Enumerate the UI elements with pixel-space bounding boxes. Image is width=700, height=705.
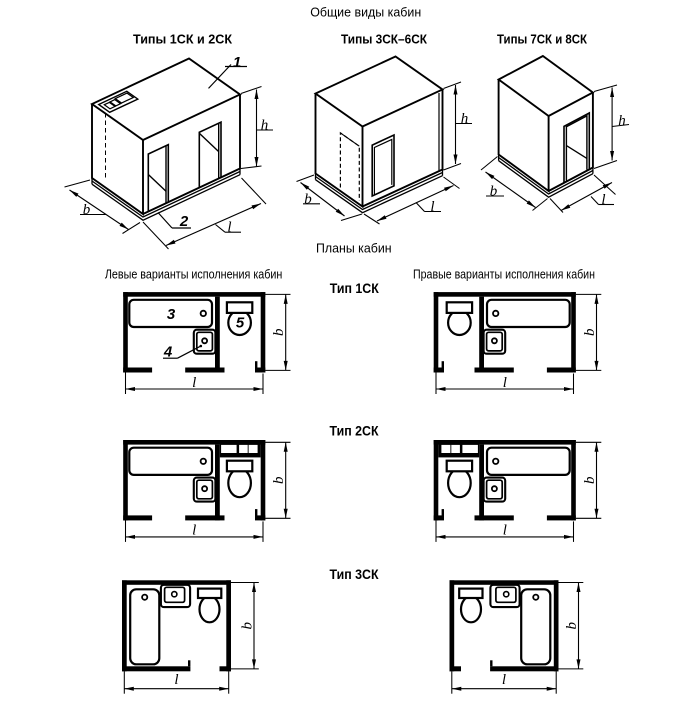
svg-text:Правые варианты исполнения каб: Правые варианты исполнения кабин bbox=[413, 268, 595, 282]
svg-text:l: l bbox=[192, 375, 196, 391]
svg-text:l: l bbox=[503, 523, 507, 539]
svg-text:l: l bbox=[503, 375, 507, 391]
svg-text:h: h bbox=[618, 113, 626, 129]
svg-text:l: l bbox=[192, 523, 196, 539]
svg-text:2: 2 bbox=[179, 213, 189, 230]
svg-text:Общие виды кабин: Общие виды кабин bbox=[310, 5, 421, 20]
svg-text:4: 4 bbox=[163, 344, 173, 361]
svg-text:l: l bbox=[502, 672, 506, 688]
svg-text:Тип 3СК: Тип 3СК bbox=[330, 567, 380, 582]
svg-text:Тип 1СК: Тип 1СК bbox=[330, 281, 380, 296]
svg-text:Левые варианты исполнения каби: Левые варианты исполнения кабин bbox=[105, 268, 283, 282]
svg-text:3: 3 bbox=[167, 306, 176, 323]
svg-text:b: b bbox=[564, 622, 580, 630]
svg-text:l: l bbox=[227, 220, 231, 236]
svg-text:b: b bbox=[304, 191, 312, 207]
svg-text:b: b bbox=[490, 184, 498, 200]
svg-text:h: h bbox=[261, 118, 269, 134]
svg-text:b: b bbox=[582, 476, 598, 484]
svg-text:Тип 2СК: Тип 2СК bbox=[330, 424, 380, 439]
svg-text:b: b bbox=[271, 476, 287, 484]
svg-text:l: l bbox=[601, 192, 605, 208]
svg-text:b: b bbox=[271, 328, 287, 336]
svg-text:Типы 3СК–6СК: Типы 3СК–6СК bbox=[341, 32, 427, 47]
svg-text:Планы кабин: Планы кабин bbox=[316, 241, 392, 256]
svg-text:b: b bbox=[582, 328, 598, 336]
svg-text:1: 1 bbox=[233, 54, 241, 71]
svg-text:Типы 7СК и 8СК: Типы 7СК и 8СК bbox=[497, 32, 587, 47]
svg-text:Типы 1СК и 2СК: Типы 1СК и 2СК bbox=[133, 32, 232, 47]
svg-text:b: b bbox=[240, 622, 256, 630]
svg-text:l: l bbox=[430, 199, 434, 215]
svg-text:5: 5 bbox=[236, 315, 245, 332]
svg-text:b: b bbox=[83, 202, 91, 218]
svg-text:h: h bbox=[461, 111, 469, 127]
svg-text:l: l bbox=[174, 672, 178, 688]
